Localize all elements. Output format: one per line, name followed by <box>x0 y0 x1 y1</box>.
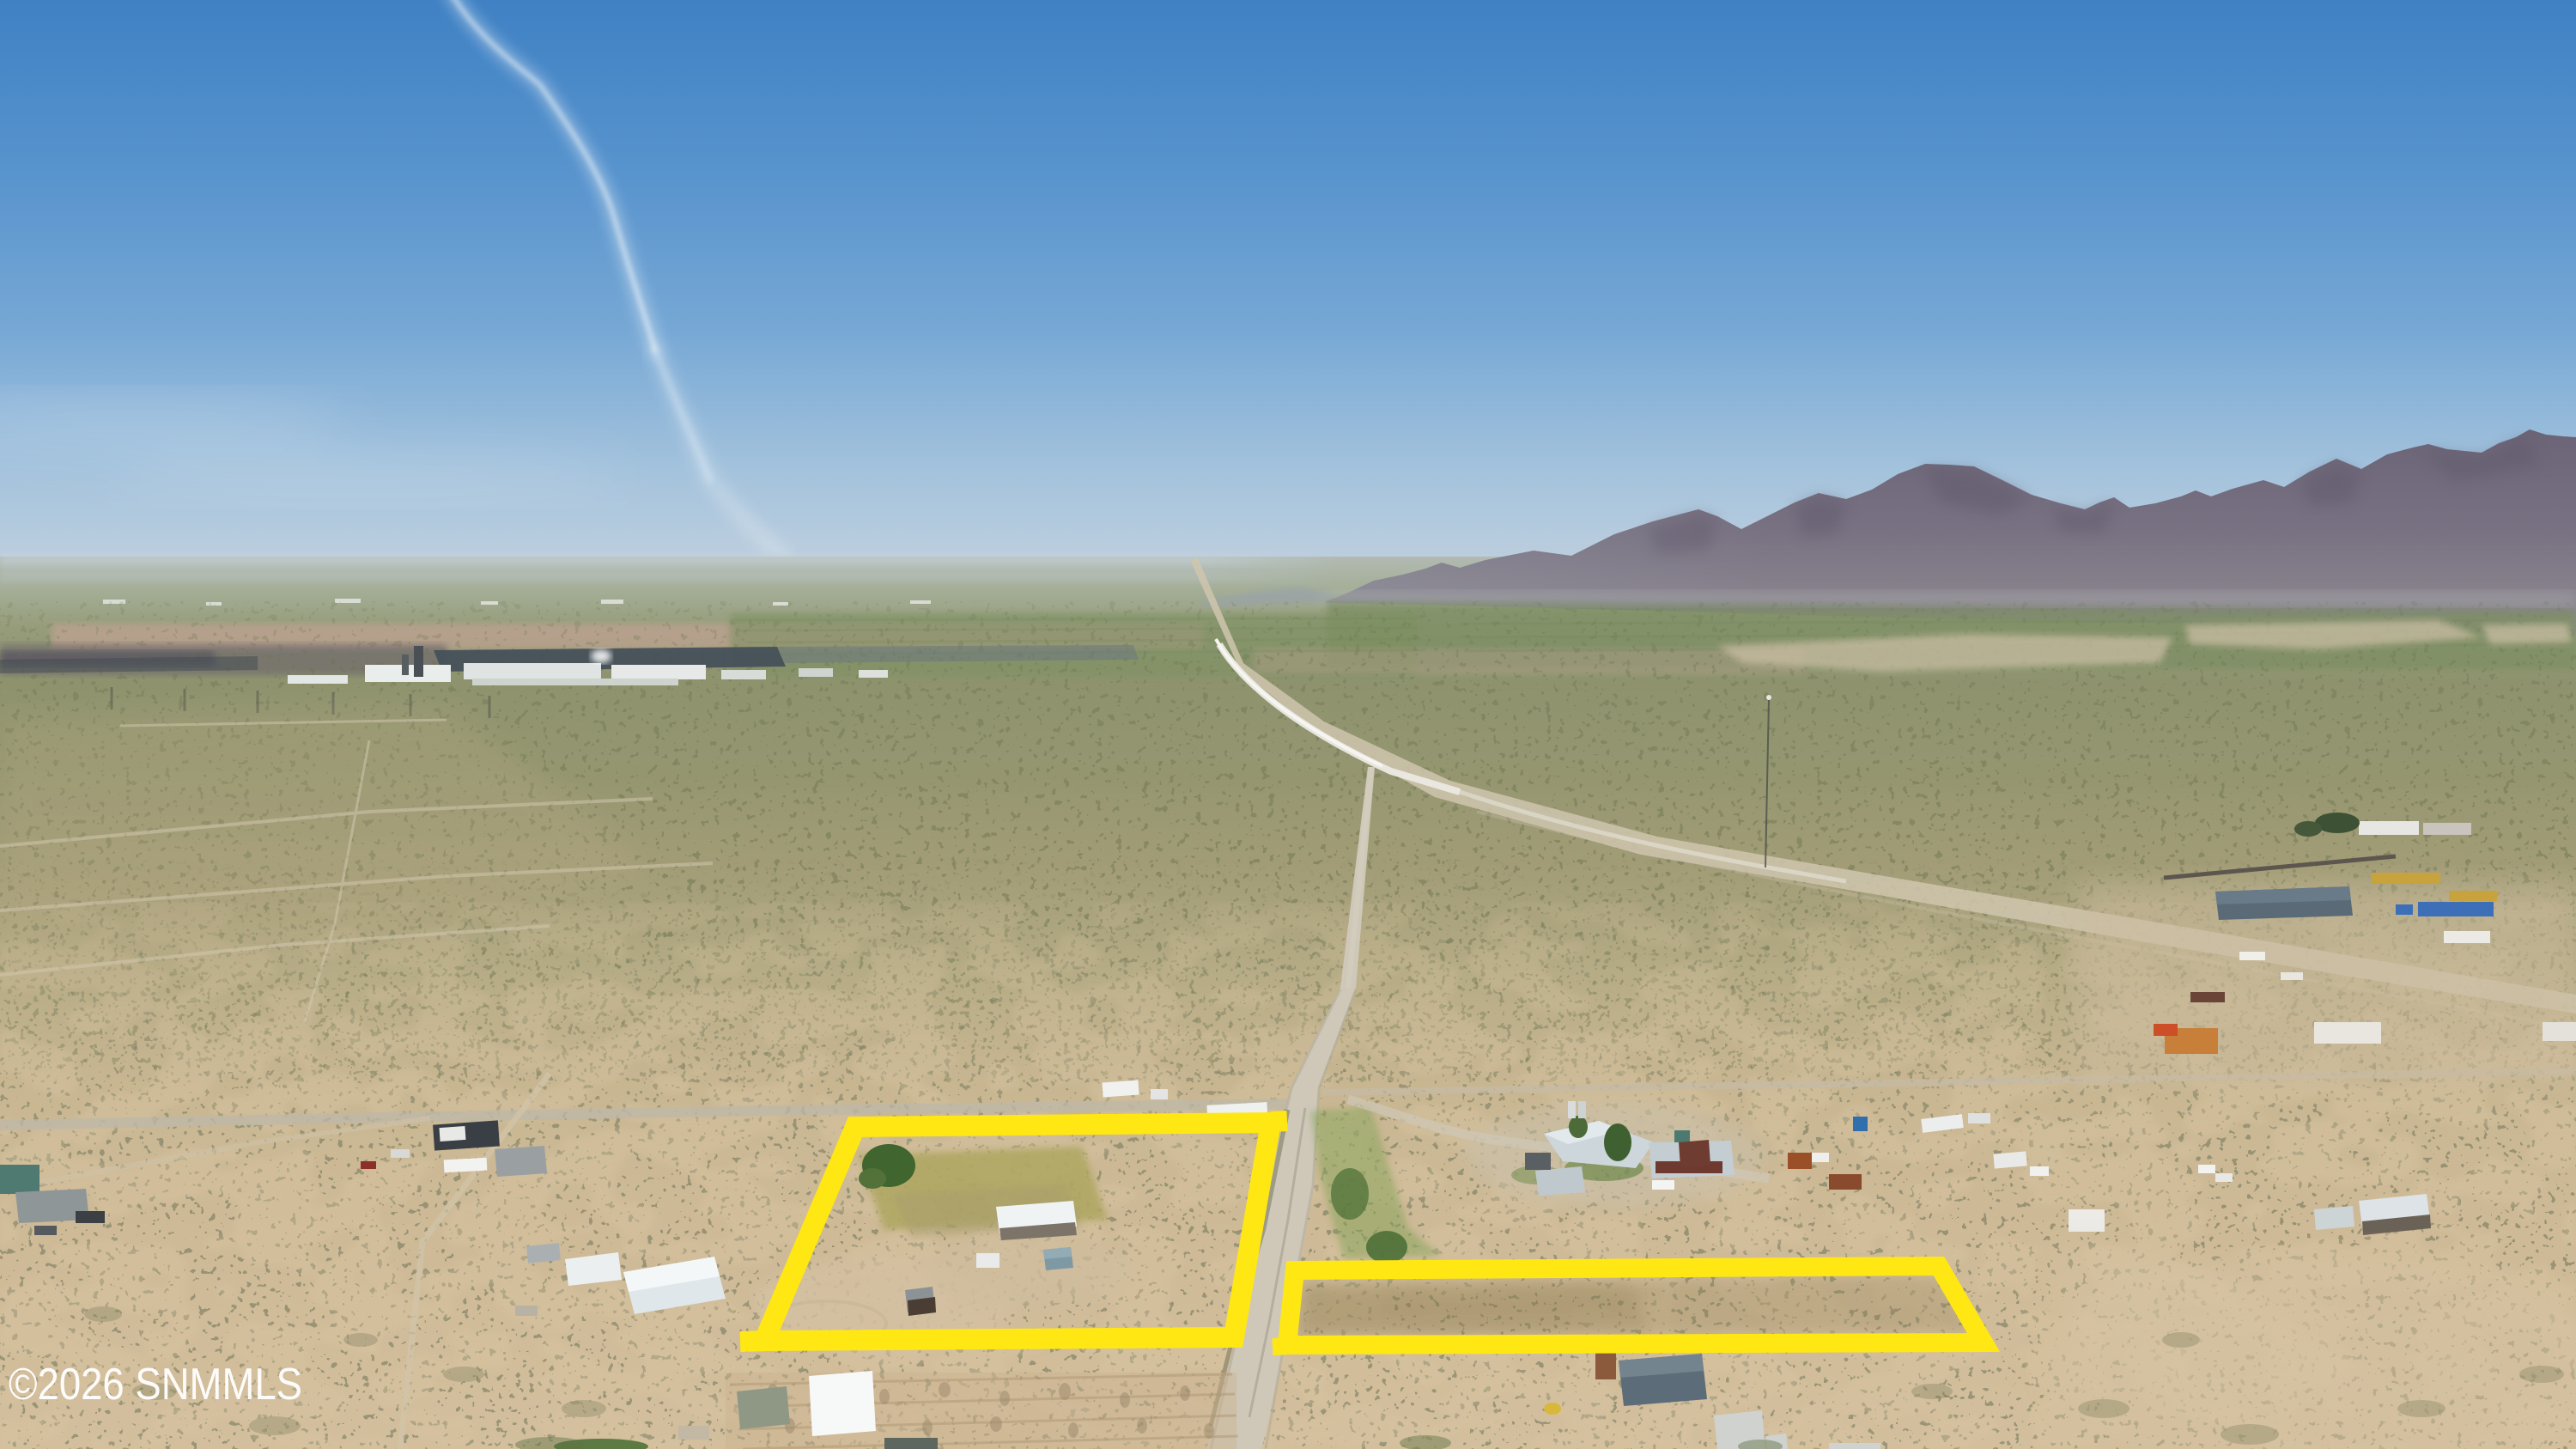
svg-text:©2026 SNMMLS: ©2026 SNMMLS <box>9 1360 302 1409</box>
